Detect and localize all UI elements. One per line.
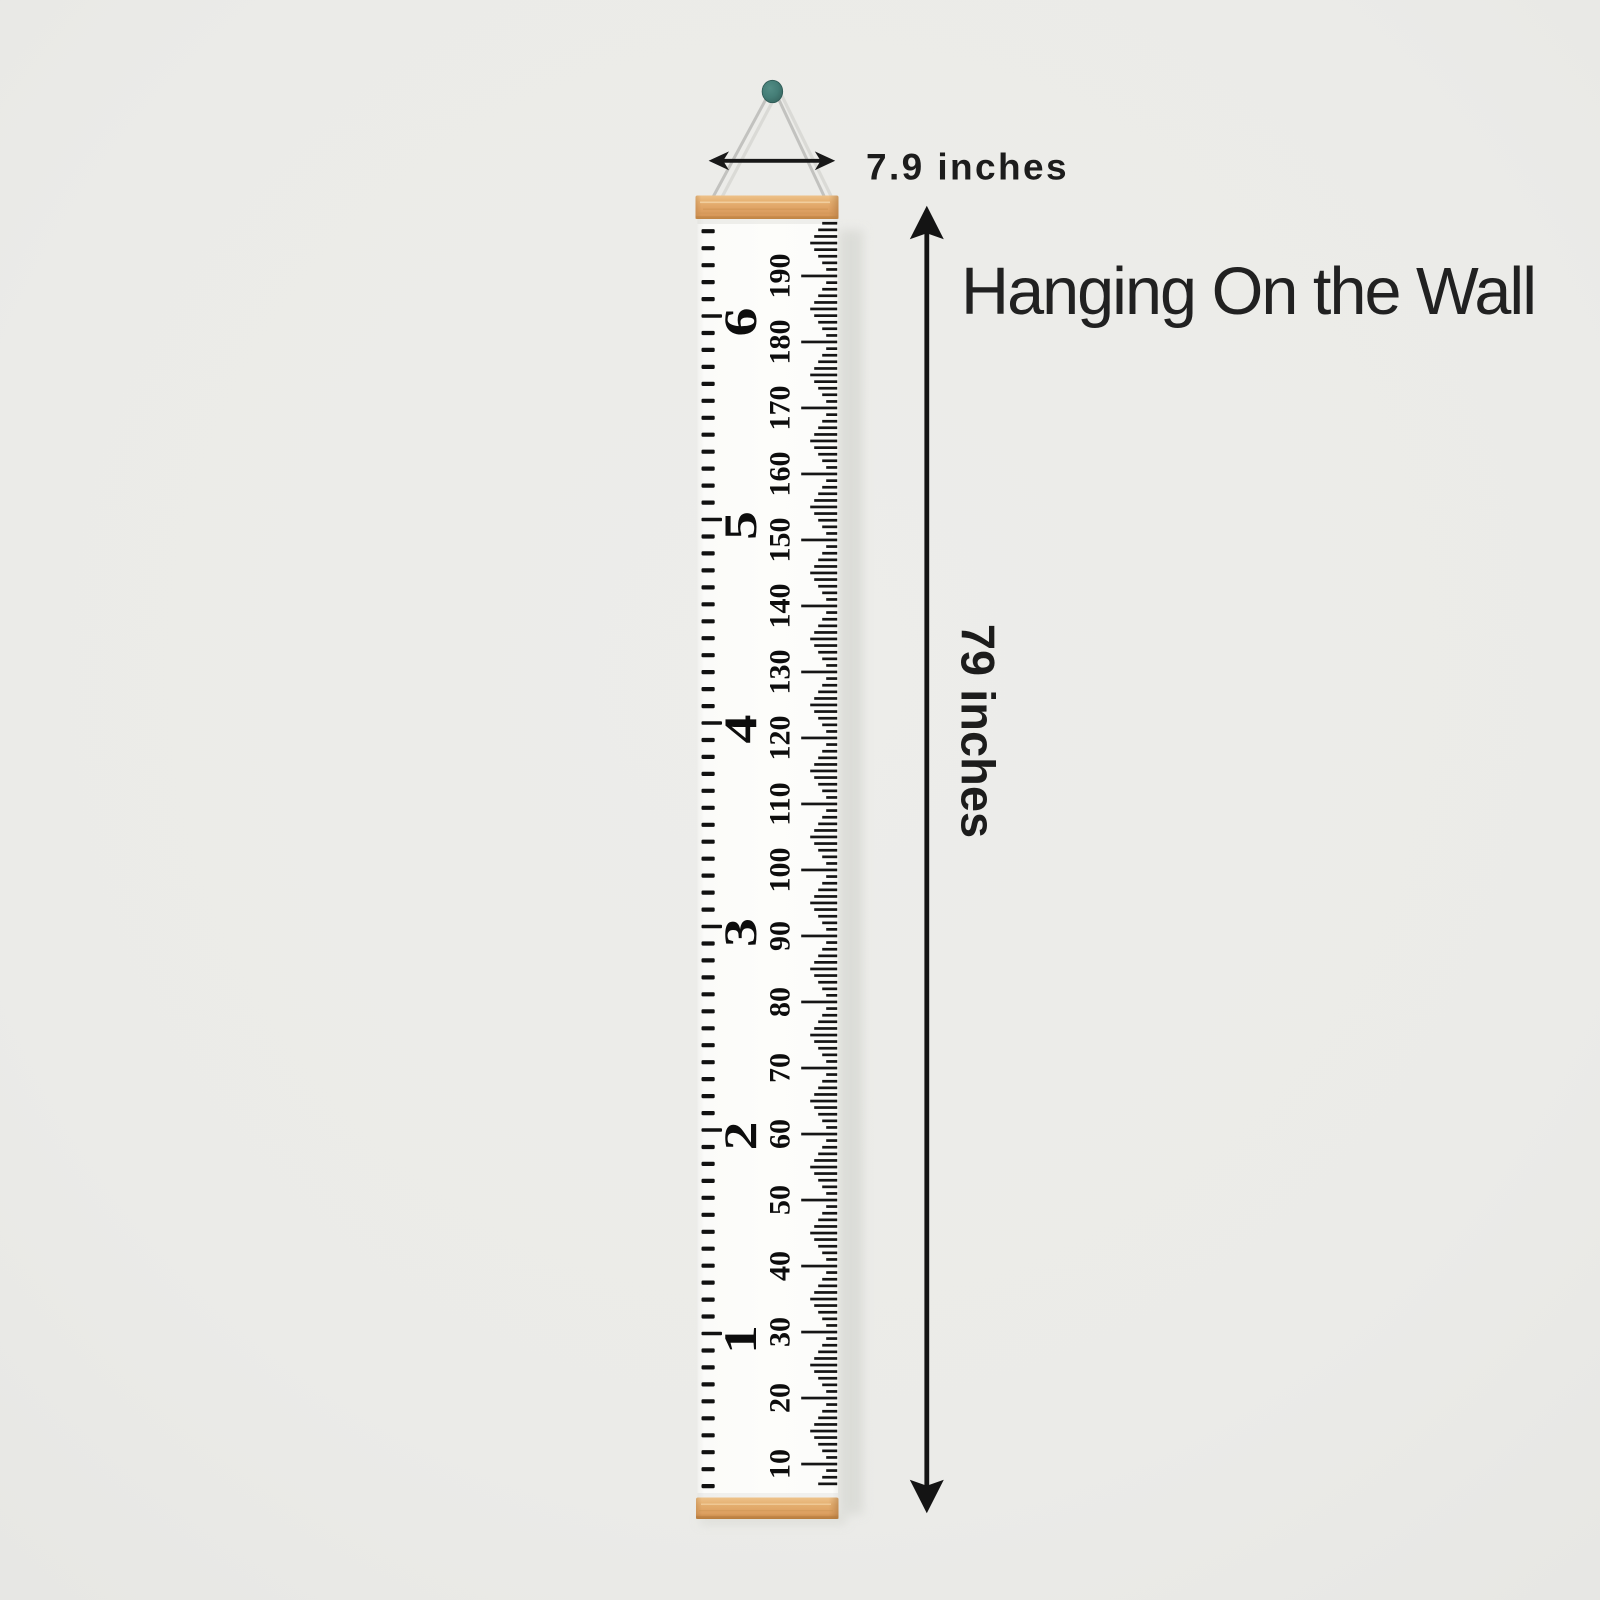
svg-text:Hanging On the Wall: Hanging On the Wall: [961, 255, 1535, 329]
svg-text:70: 70: [764, 1053, 797, 1083]
svg-text:10: 10: [764, 1449, 797, 1479]
svg-text:170: 170: [764, 386, 797, 431]
svg-text:2: 2: [715, 1122, 767, 1151]
svg-text:160: 160: [764, 452, 797, 497]
svg-text:79 inches: 79 inches: [952, 624, 1005, 838]
svg-text:150: 150: [764, 518, 797, 563]
svg-text:180: 180: [764, 320, 797, 365]
svg-text:40: 40: [764, 1251, 797, 1281]
svg-text:100: 100: [764, 848, 797, 893]
svg-text:20: 20: [764, 1383, 797, 1413]
svg-text:30: 30: [764, 1317, 797, 1347]
svg-text:90: 90: [764, 921, 797, 951]
svg-text:110: 110: [764, 782, 797, 825]
svg-text:130: 130: [764, 650, 797, 695]
svg-text:120: 120: [764, 716, 797, 761]
svg-text:4: 4: [715, 715, 767, 744]
svg-text:3: 3: [715, 918, 767, 947]
svg-text:7.9 inches: 7.9 inches: [866, 147, 1069, 188]
svg-text:50: 50: [764, 1185, 797, 1215]
svg-text:5: 5: [715, 511, 767, 540]
svg-text:60: 60: [764, 1119, 797, 1149]
svg-text:6: 6: [715, 308, 767, 337]
svg-text:190: 190: [764, 254, 797, 299]
svg-text:1: 1: [715, 1325, 767, 1354]
svg-text:140: 140: [764, 584, 797, 629]
svg-text:80: 80: [764, 987, 797, 1017]
